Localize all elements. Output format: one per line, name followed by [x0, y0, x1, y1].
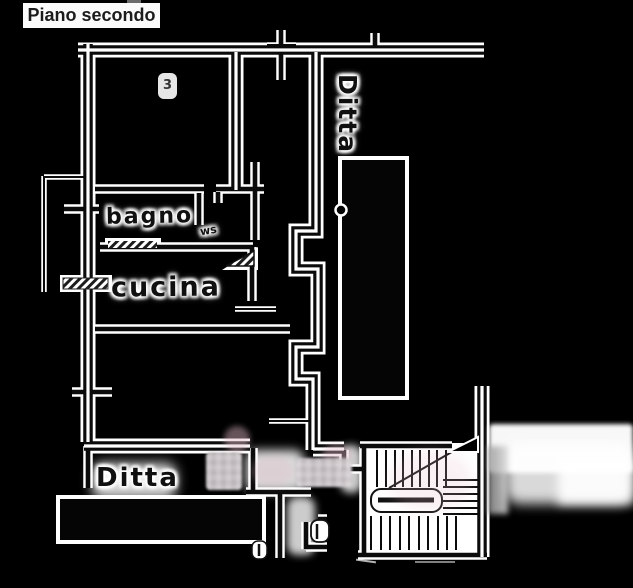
redaction-left — [206, 452, 242, 490]
ditta-solid-block — [340, 158, 407, 398]
gray-blur-edge — [488, 446, 508, 514]
bagno-hatch — [108, 241, 157, 248]
scan-artifact-2 — [415, 561, 455, 563]
room-label-ditta-right: Ditta — [333, 74, 362, 154]
redaction-center — [296, 458, 352, 487]
floor-plan-scan: Piano secondo bagno cucina Ditta Ditta w… — [0, 0, 633, 588]
white-blur-corner — [558, 460, 633, 504]
room-label-cucina: cucina — [111, 272, 221, 304]
block-notch — [336, 205, 347, 216]
room-label-ditta-bottom: Ditta — [96, 463, 179, 493]
room-number-mark: 3 — [158, 73, 177, 99]
page-title: Piano secondo — [23, 3, 160, 28]
pink-blur-1 — [224, 426, 250, 452]
balcony-hatch — [63, 278, 108, 289]
pillar-1 — [311, 520, 329, 542]
shaft-hatch-triangle — [226, 251, 254, 266]
bottom-solid-block — [58, 497, 264, 542]
pink-blur-3 — [388, 450, 473, 512]
room-label-bagno: bagno — [106, 203, 194, 230]
pink-blur-4 — [252, 456, 294, 486]
